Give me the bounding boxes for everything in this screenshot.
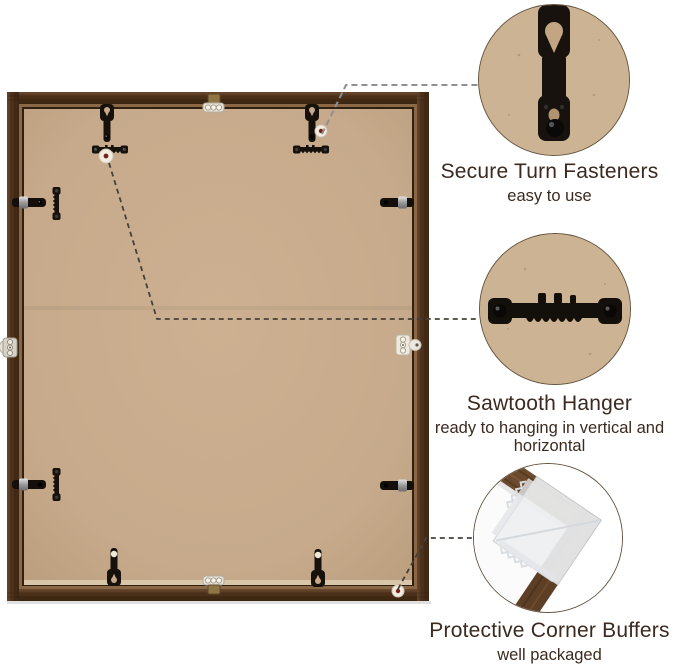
corner-buffer-photo [473,463,623,613]
callout-subtitle: well packaged [420,646,679,664]
side-turn-fastener-icon [12,479,46,491]
side-turn-fastener-icon [12,197,46,209]
turn-fastener-photo [478,4,630,156]
corner-buffer-closeup-icon [474,464,622,612]
spring-clip-icon [0,338,17,357]
product-infographic: Secure Turn Fasteners easy to use Sawtoo… [0,0,679,664]
callout-label-corner-buffers: Protective Corner Buffers well packaged [420,619,679,664]
nail-hole-marker-icon [315,125,327,137]
callout-subtitle: ready to hanging in vertical and horizon… [420,419,679,455]
picture-frame [7,92,431,604]
turn-fastener-closeup-icon [479,5,629,155]
nail-hole-marker-icon [392,585,404,597]
callout-title: Protective Corner Buffers [420,619,679,643]
backing-board [24,109,412,580]
sawtooth-hanger-photo [479,233,631,385]
callout-label-sawtooth-hanger: Sawtooth Hanger ready to hanging in vert… [420,392,679,455]
callout-title: Sawtooth Hanger [420,392,679,416]
backing-seam [24,306,412,310]
callout-title: Secure Turn Fasteners [420,160,679,184]
callout-subtitle: easy to use [420,187,679,205]
side-turn-fastener-icon [380,197,414,209]
nail-hole-marker-icon [99,149,113,163]
callout-label-turn-fasteners: Secure Turn Fasteners easy to use [420,160,679,205]
callout-subtitle-text: ready to hanging in vertical and horizon… [430,419,670,455]
nail-hole-marker-icon [315,552,321,558]
nail-hole-marker-icon [111,551,117,557]
side-turn-fastener-icon [380,480,414,492]
sawtooth-hanger-closeup-icon [480,234,630,384]
frame-shadow [7,601,431,604]
